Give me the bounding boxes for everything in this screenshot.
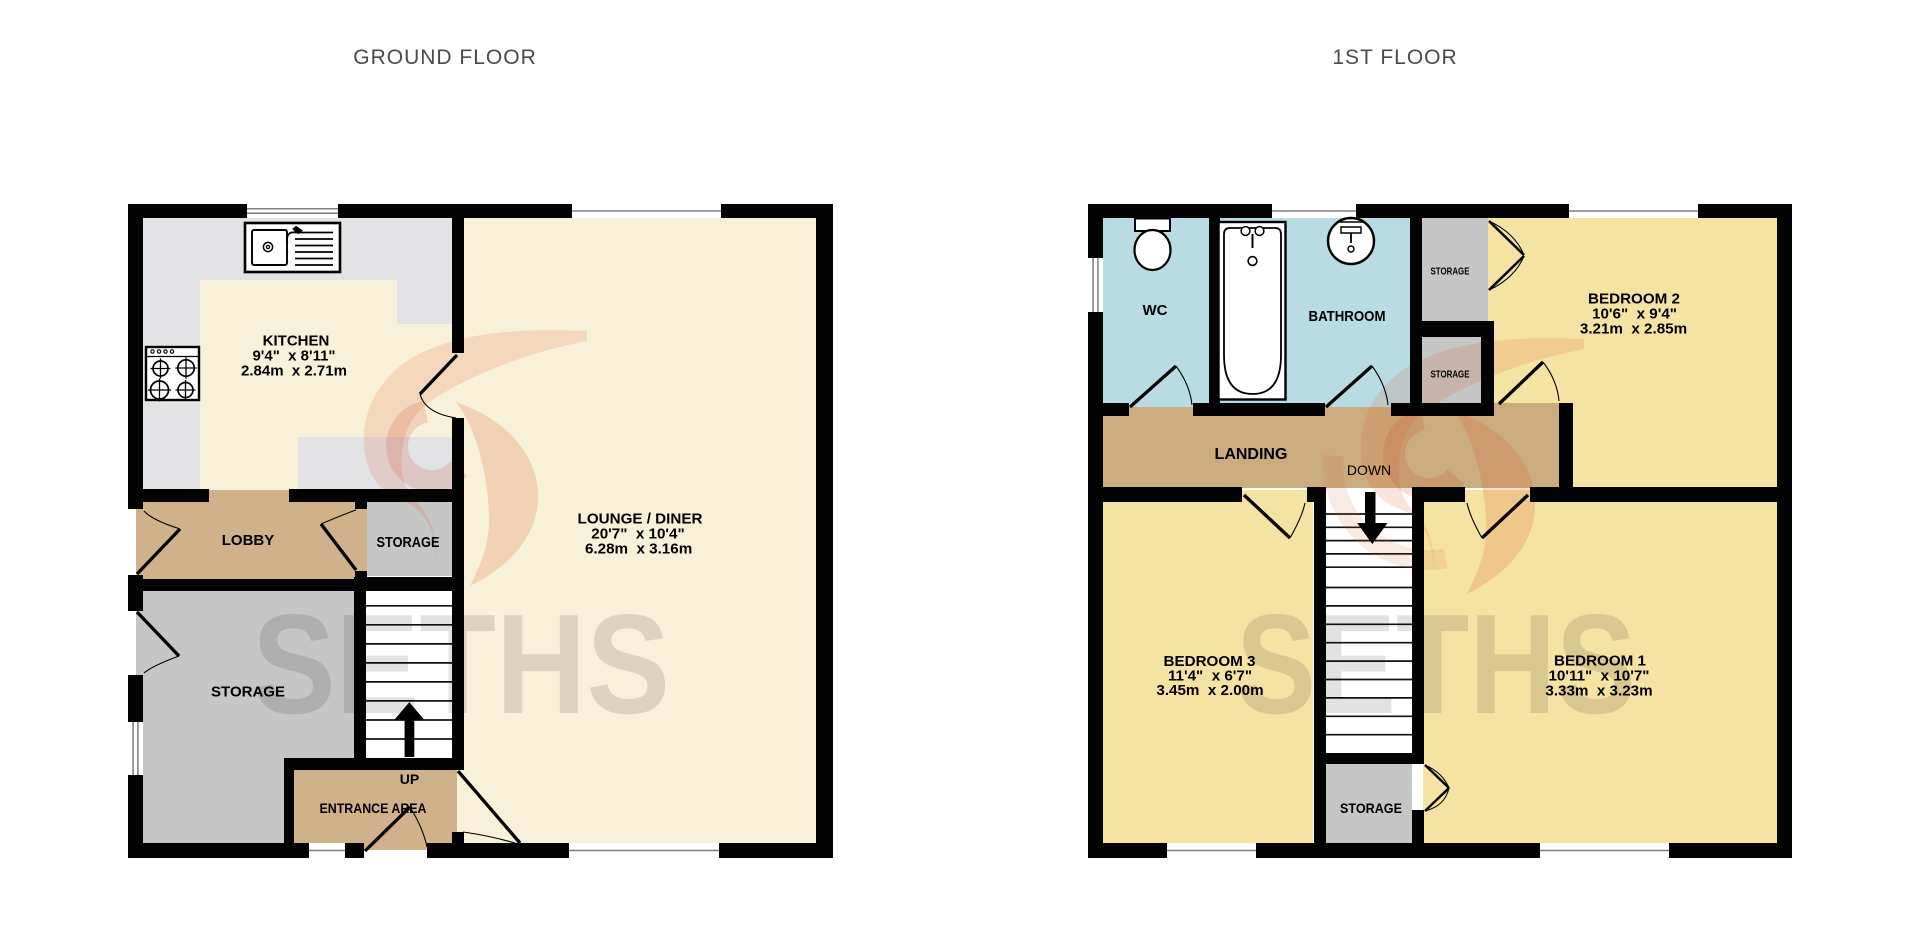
svg-text:DOWN: DOWN [1347,462,1391,478]
svg-text:1ST FLOOR: 1ST FLOOR [1332,46,1457,69]
svg-text:ENTRANCE AREA: ENTRANCE AREA [320,801,427,816]
svg-text:LOBBY: LOBBY [222,532,275,549]
svg-text:WC: WC [1143,302,1168,319]
svg-text:UP: UP [400,771,419,787]
svg-text:6.28m x 3.16m: 6.28m x 3.16m [585,541,692,558]
svg-text:BATHROOM: BATHROOM [1309,308,1386,325]
svg-text:STORAGE: STORAGE [377,534,440,551]
svg-text:3.21m x 2.85m: 3.21m x 2.85m [1580,321,1687,338]
svg-text:STORAGE: STORAGE [1431,370,1470,381]
svg-text:STORAGE: STORAGE [1340,800,1402,816]
svg-text:3.45m x 2.00m: 3.45m x 2.00m [1156,682,1263,699]
svg-text:LANDING: LANDING [1215,446,1288,463]
svg-text:GROUND FLOOR: GROUND FLOOR [353,46,537,69]
svg-text:STORAGE: STORAGE [1431,267,1470,278]
svg-text:3.33m x 3.23m: 3.33m x 3.23m [1545,683,1652,700]
svg-text:2.84m x 2.71m: 2.84m x 2.71m [241,363,347,380]
svg-text:STORAGE: STORAGE [211,684,285,701]
